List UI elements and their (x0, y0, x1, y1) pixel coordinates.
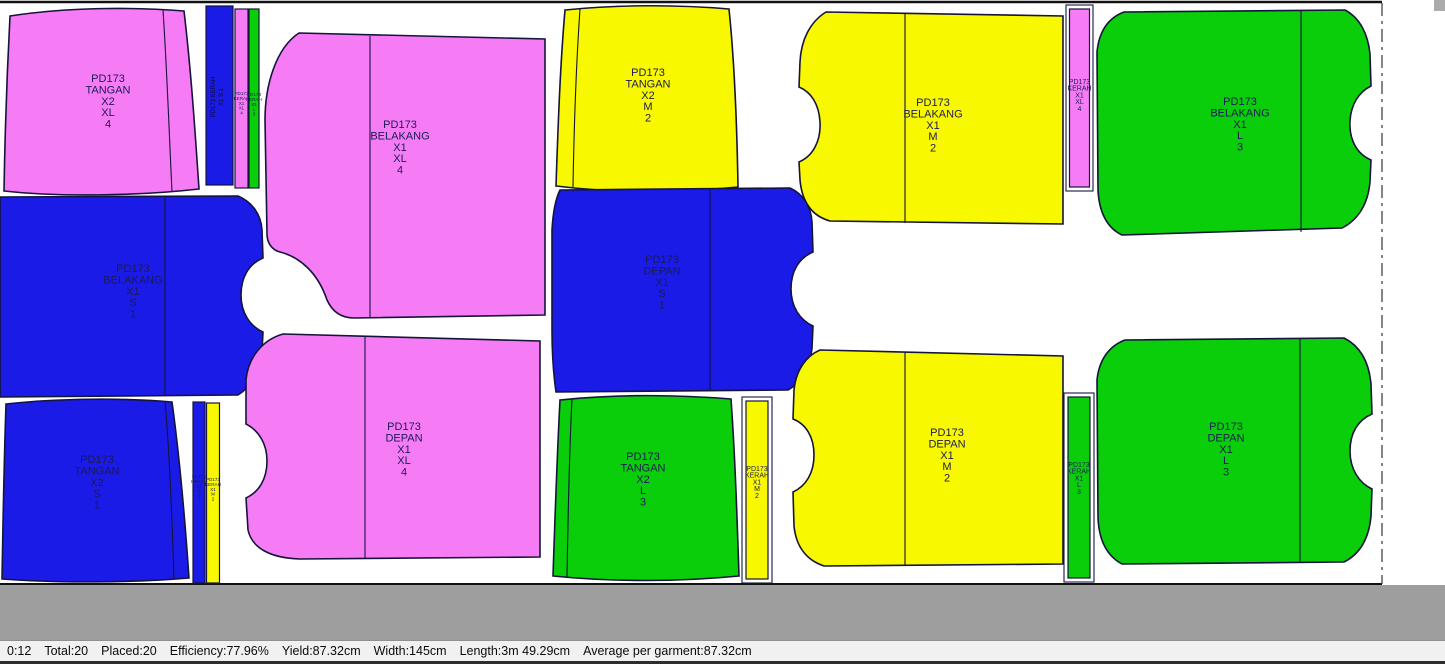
piece-tangan-l[interactable]: PD173TANGANX2L3 (553, 396, 739, 581)
piece-depan-l[interactable]: PD173DEPANX1L3 (1097, 338, 1372, 564)
status-total: Total:20 (44, 644, 88, 658)
status-placed: Placed:20 (101, 644, 157, 658)
piece-outline (552, 188, 813, 392)
marker-window: PD173TANGANX2XL4 PD173 KERAH X1 S 1 PD17… (0, 0, 1445, 664)
status-efficiency: Efficiency:77.96% (170, 644, 269, 658)
piece-belakang-m[interactable]: PD173BELAKANGX1M2 (799, 12, 1063, 224)
status-bar: 0:12 Total:20 Placed:20 Efficiency:77.96… (0, 640, 1445, 661)
piece-kerah-s-strip-bottom[interactable]: PD173KERAHX1S1 (191, 402, 207, 583)
piece-tangan-xl[interactable]: PD173TANGANX2XL4 (4, 8, 199, 194)
svg-text:X1 S 1: X1 S 1 (219, 87, 225, 106)
piece-belakang-l[interactable]: PD173BELAKANGX1L3 (1097, 10, 1371, 235)
piece-outline (265, 33, 545, 318)
status-time: 0:12 (7, 644, 31, 658)
piece-kerah-m-strip[interactable]: PD173KERAHX1M2 (742, 397, 772, 583)
status-width: Width:145cm (374, 644, 447, 658)
status-yield: Yield:87.32cm (282, 644, 361, 658)
piece-kerah-m-strip-left[interactable]: PD173KERAHX1M2 (205, 403, 221, 583)
piece-outline (793, 350, 1063, 566)
piece-kerah-l-strip-left[interactable]: PD173KERAHX1L3 (246, 9, 262, 188)
piece-tangan-m[interactable]: PD173TANGANX2M2 (556, 6, 738, 192)
piece-kerah-s-strip[interactable]: PD173 KERAH X1 S 1 (206, 6, 233, 185)
piece-outline (246, 334, 540, 559)
status-average: Average per garment:87.32cm (583, 644, 752, 658)
piece-kerah-l-strip[interactable]: PD173KERAHX1L3 (1064, 393, 1094, 582)
offcut-band (0, 585, 1445, 640)
status-length: Length:3m 49.29cm (460, 644, 571, 658)
piece-outline (1097, 338, 1372, 564)
piece-depan-xl[interactable]: PD173DEPANX1XL4 (246, 334, 540, 559)
scrollbar-corner (1434, 0, 1445, 11)
marker-canvas: PD173TANGANX2XL4 PD173 KERAH X1 S 1 PD17… (0, 0, 1445, 640)
piece-tangan-s[interactable]: PD173TANGANX2S1 (2, 399, 189, 582)
piece-belakang-xl[interactable]: PD173BELAKANGX1XL4 (265, 33, 545, 318)
piece-depan-s[interactable]: PD173DEPANX1S1 (552, 188, 813, 392)
piece-belakang-s[interactable]: PD173BELAKANGX1S1 (0, 196, 263, 397)
piece-depan-m[interactable]: PD173DEPANX1M2 (793, 350, 1063, 566)
svg-text:PD173 KERAH: PD173 KERAH (211, 77, 217, 118)
piece-kerah-xl-strip[interactable]: PD173KERAHX1XL4 (1066, 5, 1093, 191)
